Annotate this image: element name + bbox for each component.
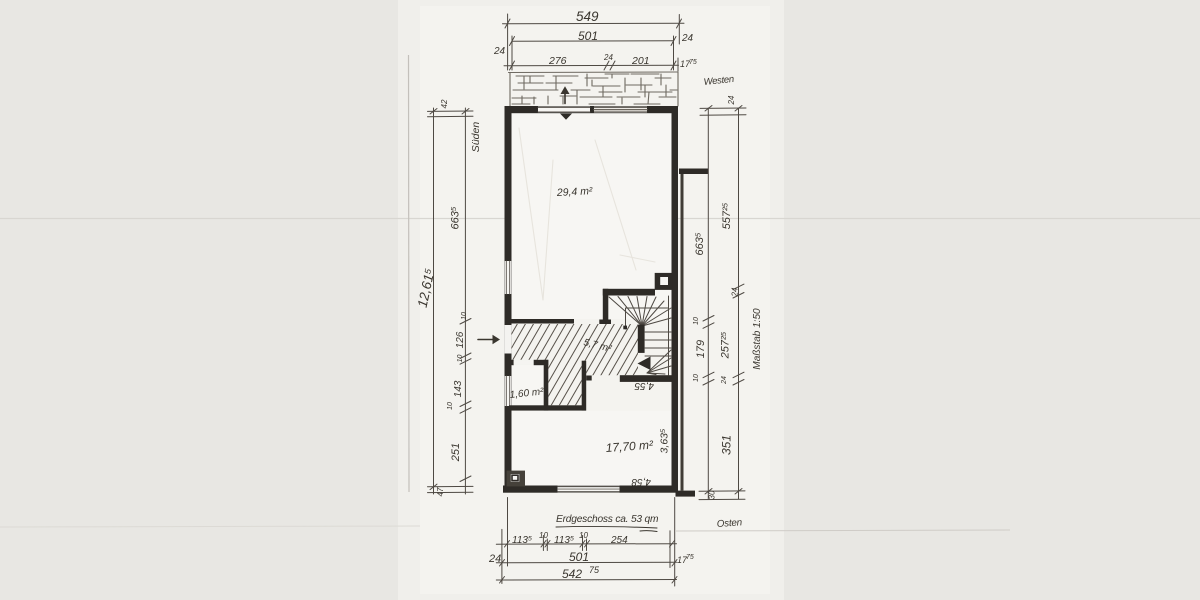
svg-text:Osten: Osten (716, 517, 742, 530)
svg-text:257²⁵: 257²⁵ (720, 331, 732, 359)
svg-text:10: 10 (539, 531, 548, 540)
svg-text:24: 24 (681, 33, 694, 44)
svg-text:75: 75 (686, 554, 694, 561)
svg-text:254: 254 (610, 535, 628, 546)
svg-text:179: 179 (695, 340, 707, 358)
svg-text:201: 201 (631, 55, 650, 67)
svg-text:501: 501 (569, 550, 589, 564)
svg-text:10: 10 (457, 355, 464, 363)
svg-text:75: 75 (689, 59, 697, 66)
svg-text:24: 24 (493, 46, 506, 57)
svg-text:549: 549 (576, 9, 599, 24)
svg-text:557²⁵: 557²⁵ (721, 202, 733, 229)
svg-text:24: 24 (488, 553, 501, 565)
svg-text:29,4 m²: 29,4 m² (556, 185, 594, 199)
svg-text:75: 75 (589, 565, 600, 575)
svg-text:501: 501 (578, 29, 598, 43)
svg-text:113⁵: 113⁵ (554, 535, 574, 546)
svg-text:10: 10 (693, 374, 700, 382)
svg-text:4,58: 4,58 (631, 476, 651, 487)
svg-text:Erdgeschoss ca. 53 qm: Erdgeschoss ca. 53 qm (556, 514, 659, 525)
svg-text:276: 276 (548, 55, 567, 67)
svg-text:47: 47 (436, 487, 445, 496)
svg-text:4,55: 4,55 (634, 380, 654, 391)
svg-text:663⁵: 663⁵ (450, 206, 462, 229)
svg-text:10: 10 (579, 531, 588, 540)
svg-text:663⁵: 663⁵ (694, 232, 706, 255)
svg-text:10: 10 (693, 317, 700, 325)
svg-text:126: 126 (455, 331, 466, 348)
svg-text:24: 24 (727, 95, 736, 105)
svg-text:24: 24 (603, 53, 613, 62)
svg-text:30: 30 (708, 490, 717, 499)
svg-text:Maßstab 1:50: Maßstab 1:50 (752, 308, 763, 370)
svg-text:351: 351 (720, 435, 734, 455)
svg-text:Süden: Süden (470, 122, 482, 153)
svg-text:24: 24 (721, 376, 728, 385)
svg-text:10: 10 (461, 312, 468, 320)
svg-text:24: 24 (731, 287, 740, 297)
svg-text:542: 542 (562, 567, 582, 581)
svg-text:113⁵: 113⁵ (512, 535, 532, 546)
svg-text:10: 10 (447, 402, 454, 410)
svg-text:143: 143 (453, 380, 464, 397)
svg-text:42: 42 (440, 99, 449, 108)
svg-text:3,63⁵: 3,63⁵ (659, 428, 671, 453)
svg-text:251: 251 (450, 443, 462, 462)
